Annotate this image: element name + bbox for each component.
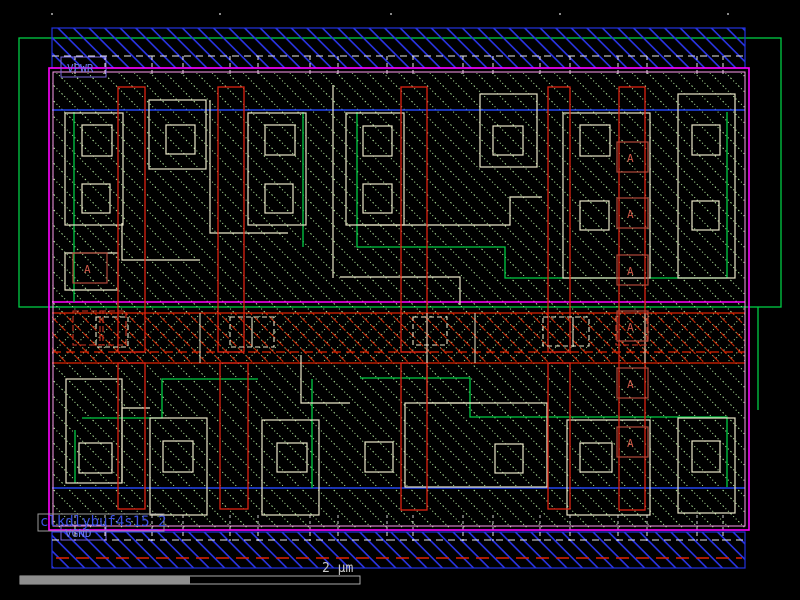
vgnd-rail	[52, 532, 745, 568]
layout-canvas[interactable]: AAAAAAA VPWR VGND clkdlybuf4s15_2 2 μm	[0, 0, 800, 600]
vpwr-rail	[52, 28, 745, 68]
ruler-tick	[559, 13, 561, 15]
scale-bar-label: 2 μm	[322, 561, 353, 576]
cell-name-label: clkdlybuf4s15_2	[38, 514, 166, 531]
cell-name-text: clkdlybuf4s15_2	[40, 514, 166, 530]
ruler-tick	[390, 13, 392, 15]
scale-bar-fill	[20, 576, 190, 584]
pin-a-label: A	[627, 208, 634, 221]
active-area-hatch	[52, 73, 745, 528]
pin-a-label: A	[627, 378, 634, 391]
ruler-tick	[219, 13, 221, 15]
vpwr-label-text: VPWR	[67, 62, 94, 75]
pin-a-label: A	[84, 263, 91, 276]
ruler-tick	[51, 13, 53, 15]
pin-a-label: A	[627, 437, 634, 450]
pin-a-label: A	[627, 265, 634, 278]
pin-a-label: A	[627, 321, 634, 334]
pin-a-label: A	[627, 152, 634, 165]
layout-viewport[interactable]: AAAAAAA VPWR VGND clkdlybuf4s15_2 2 μm	[0, 0, 800, 600]
ruler-tick	[727, 13, 729, 15]
